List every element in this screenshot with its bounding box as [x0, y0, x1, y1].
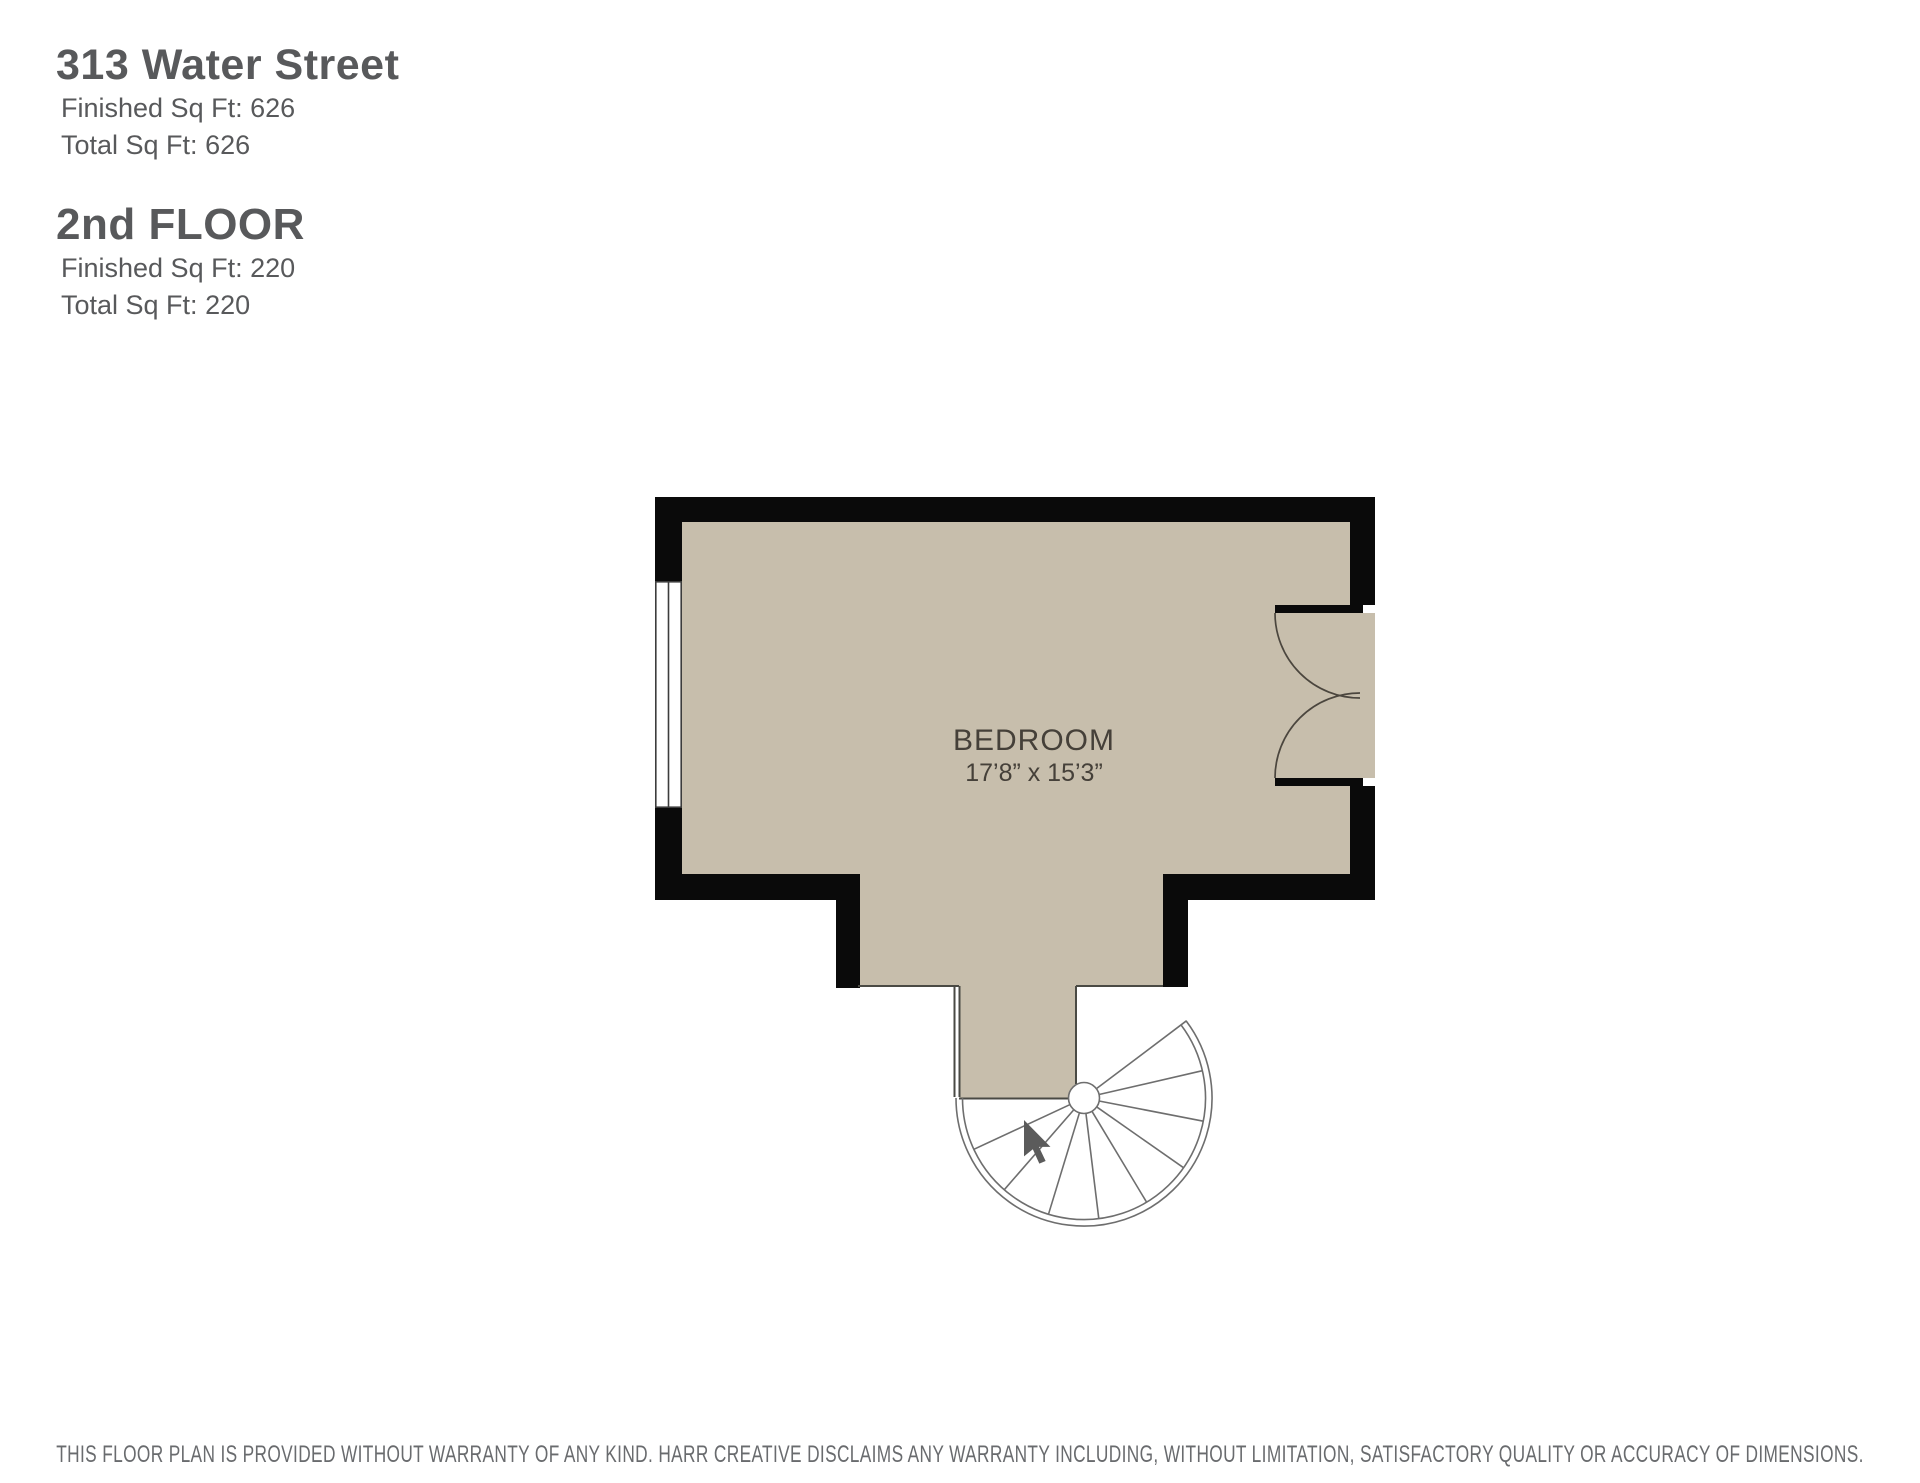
stair-tread-line [1049, 1113, 1080, 1214]
wall-left-upper [655, 522, 682, 582]
stair-tread-line [1097, 1107, 1183, 1168]
stair-tread-line [1092, 1112, 1146, 1203]
wall-stem-left [836, 898, 860, 988]
disclaimer-text: THIS FLOOR PLAN IS PROVIDED WITHOUT WARR… [56, 1441, 1864, 1469]
wall-right-lower [1350, 786, 1375, 900]
wall-right-upper [1350, 497, 1375, 605]
room-label: BEDROOM 17’8” x 15’3” [884, 724, 1184, 788]
window [655, 581, 682, 808]
floor-plan-page: 313 Water Street Finished Sq Ft: 626 Tot… [0, 0, 1920, 1483]
room-floor [680, 522, 1350, 1098]
stair-center-post [1069, 1083, 1100, 1114]
stair-tread-line [1100, 1101, 1204, 1121]
wall-top [655, 497, 1375, 522]
door-leaf-upper [1275, 605, 1363, 613]
wall-bottom-left [655, 874, 860, 900]
wall-stem-right [1163, 874, 1188, 987]
door-leaf-lower [1275, 778, 1363, 786]
wall-bottom-right [1163, 874, 1375, 900]
doorway-floor [1350, 613, 1375, 778]
room-dimensions: 17’8” x 15’3” [884, 758, 1184, 788]
stair-tread-line [974, 1105, 1070, 1150]
room-name: BEDROOM [884, 724, 1184, 758]
stair-tread-line [1086, 1114, 1099, 1219]
